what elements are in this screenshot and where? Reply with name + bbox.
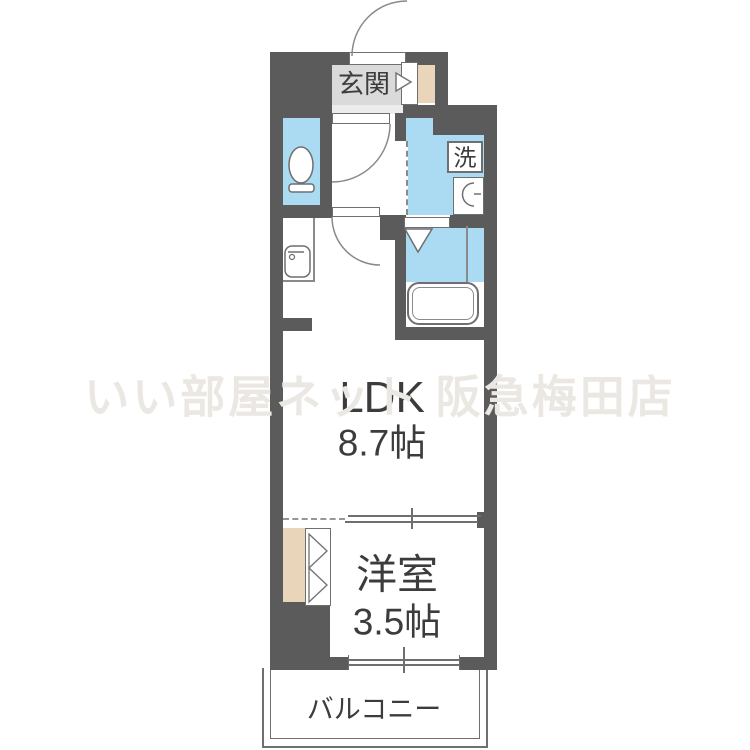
folding-door-icon <box>309 534 327 602</box>
door-swing-icon <box>352 1 407 56</box>
genkan-label: 玄関 <box>338 71 390 97</box>
ldk-size-label: 8.7帖 <box>338 425 426 462</box>
washbasin-icon <box>463 183 482 206</box>
entrance-arrow-icon <box>396 73 411 91</box>
door-swing-icon <box>332 217 380 265</box>
balcony-label: バルコニー <box>307 697 441 724</box>
washing-machine-label: 洗 <box>454 147 477 170</box>
western-room-label: 洋室 <box>356 555 438 596</box>
bathroom-door-triangle <box>405 229 432 252</box>
floor-plan: 玄関 洗 LDK 8.7帖 洋室 3.5帖 バルコニー いい部屋ネット 阪急梅田… <box>0 0 750 750</box>
door-swing-icon <box>332 124 390 182</box>
western-room-size-label: 3.5帖 <box>353 604 441 641</box>
toilet-icon <box>289 147 314 192</box>
watermark: いい部屋ネット 阪急梅田店 <box>84 361 676 426</box>
kitchen-sink-icon <box>285 246 310 277</box>
